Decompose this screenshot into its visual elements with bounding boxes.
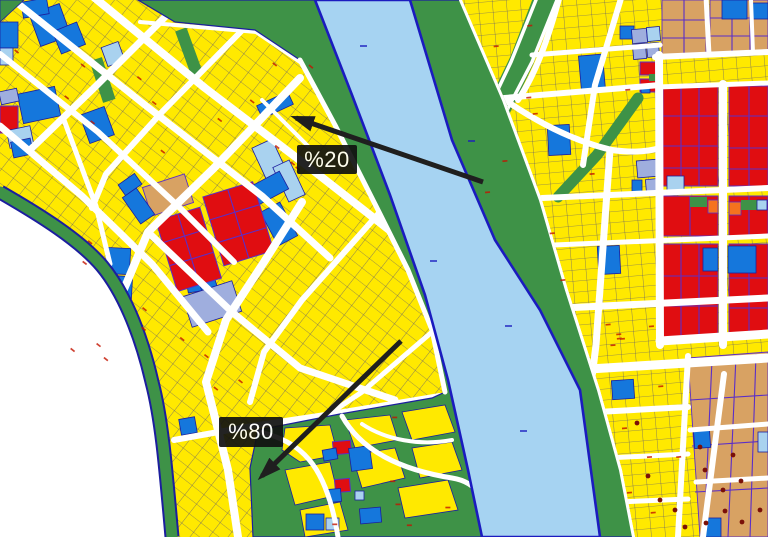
percent-20-label: %20: [297, 145, 357, 174]
zoning-map-view[interactable]: %20 %80: [0, 0, 768, 537]
zoning-map-canvas: [0, 0, 768, 537]
percent-80-label: %80: [219, 417, 283, 447]
